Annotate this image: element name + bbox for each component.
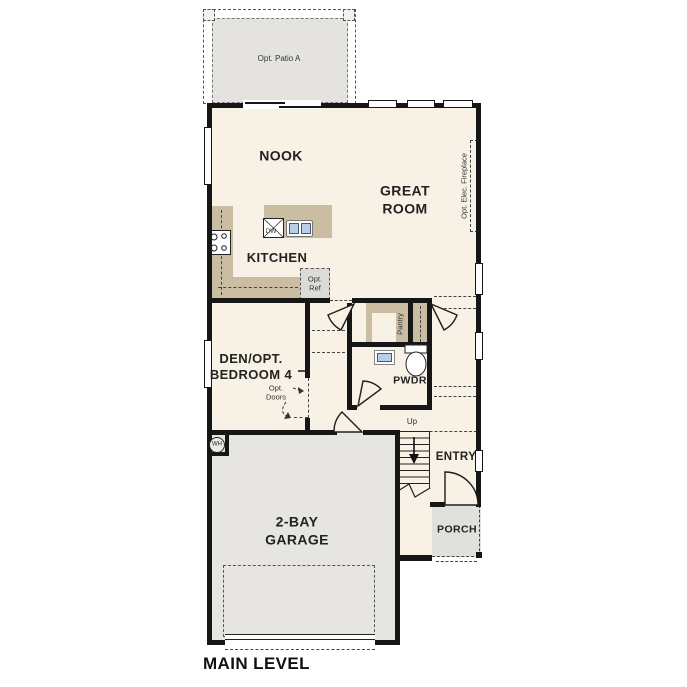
room-label-garage: 2-BAY GARAGE: [265, 514, 329, 549]
page-title: MAIN LEVEL: [203, 654, 310, 674]
opt-doors-arrow-2: [284, 412, 291, 419]
opt-doors-arrow-1: [298, 387, 304, 394]
room-label-great-room: GREAT ROOM: [380, 183, 430, 218]
burner-1: [211, 234, 217, 240]
door-arc-pantry: [328, 304, 354, 330]
door-arc-front: [445, 472, 478, 505]
annotation-opt-doors: Opt. Doors: [266, 384, 286, 403]
room-label-entry: ENTRY: [436, 450, 477, 464]
room-label-kitchen: KITCHEN: [247, 250, 308, 266]
symbol-overlay: [0, 0, 687, 687]
burner-4: [222, 246, 227, 251]
annotation-fireplace: Opt. Elec. Fireplace: [459, 153, 468, 219]
burner-3: [211, 245, 217, 251]
floor-plan: NOOK GREAT ROOM KITCHEN DEN/OPT. BEDROOM…: [0, 0, 687, 687]
room-label-pantry: Pantry: [395, 313, 404, 335]
annotation-dw: DW: [266, 228, 277, 236]
annotation-opt-ref: Opt. Ref: [308, 275, 322, 294]
annotation-up: Up: [407, 417, 417, 427]
room-label-nook: NOOK: [259, 147, 303, 165]
annotation-patio: Opt. Patio A: [258, 54, 301, 64]
toilet-bowl: [406, 352, 426, 376]
door-arc-closet: [431, 304, 457, 330]
door-arc-pwdr: [358, 381, 381, 406]
room-label-porch: PORCH: [437, 523, 477, 536]
room-label-den: DEN/OPT. BEDROOM 4: [210, 351, 292, 384]
stair-arrow-head: [409, 454, 419, 464]
burner-2: [222, 234, 227, 239]
room-label-pwdr: PWDR: [393, 374, 427, 387]
stair-zigzag: [398, 484, 430, 497]
door-arc-garage: [334, 412, 362, 432]
annotation-wh: WH: [212, 441, 222, 449]
